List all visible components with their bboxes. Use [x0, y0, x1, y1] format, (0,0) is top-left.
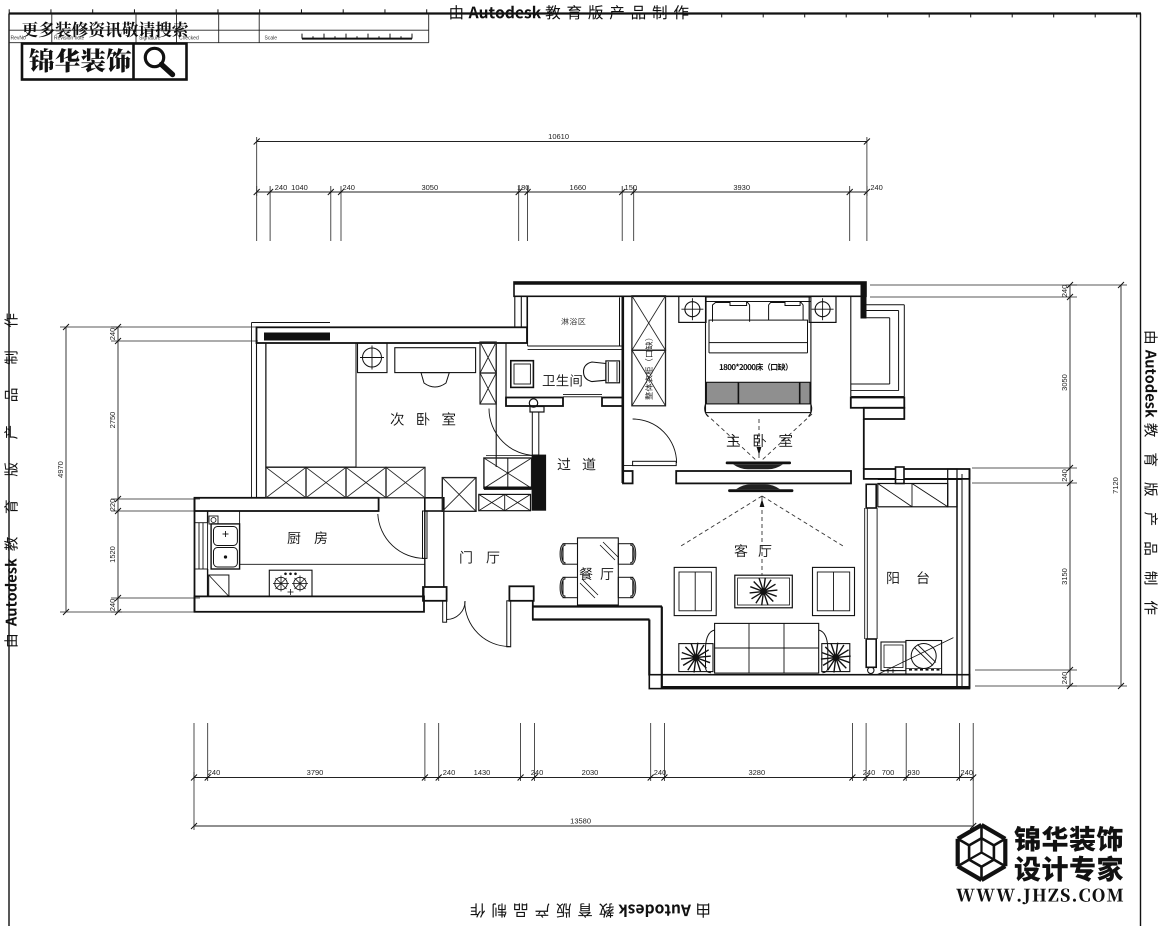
- svg-text:240: 240: [342, 183, 355, 192]
- svg-text:Scale: Scale: [265, 36, 278, 42]
- svg-text:4970: 4970: [56, 461, 65, 478]
- svg-text:240: 240: [443, 768, 456, 777]
- svg-text:RevNo: RevNo: [11, 36, 27, 42]
- svg-text:240: 240: [654, 768, 667, 777]
- svg-text:13580: 13580: [570, 816, 591, 825]
- svg-text:240: 240: [1060, 672, 1069, 685]
- svg-text:3050: 3050: [421, 183, 438, 192]
- svg-text:240: 240: [863, 768, 876, 777]
- svg-text:220: 220: [108, 499, 117, 512]
- svg-text:240: 240: [870, 183, 883, 192]
- svg-text:2030: 2030: [582, 768, 599, 777]
- svg-text:3930: 3930: [733, 183, 750, 192]
- svg-text:150: 150: [625, 183, 638, 192]
- svg-text:Checked: Checked: [179, 36, 199, 42]
- svg-text:240: 240: [108, 328, 117, 341]
- svg-text:240: 240: [1060, 285, 1069, 298]
- svg-text:240: 240: [275, 183, 288, 192]
- svg-text:700: 700: [882, 768, 895, 777]
- svg-text:3150: 3150: [1060, 568, 1069, 585]
- svg-text:10610: 10610: [548, 132, 569, 141]
- svg-text:240: 240: [1060, 469, 1069, 482]
- svg-text:240: 240: [208, 768, 221, 777]
- svg-text:240: 240: [961, 768, 974, 777]
- svg-text:1660: 1660: [570, 183, 587, 192]
- svg-text:3790: 3790: [307, 768, 324, 777]
- svg-text:2750: 2750: [108, 412, 117, 429]
- svg-text:240: 240: [531, 768, 544, 777]
- svg-text:240: 240: [108, 599, 117, 612]
- svg-text:1430: 1430: [474, 768, 491, 777]
- svg-text:1040: 1040: [291, 183, 308, 192]
- svg-text:7120: 7120: [1111, 477, 1120, 494]
- svg-text:1520: 1520: [108, 546, 117, 563]
- svg-text:180: 180: [517, 183, 530, 192]
- svg-text:3280: 3280: [748, 768, 765, 777]
- svg-text:3050: 3050: [1060, 374, 1069, 391]
- svg-text:930: 930: [907, 768, 920, 777]
